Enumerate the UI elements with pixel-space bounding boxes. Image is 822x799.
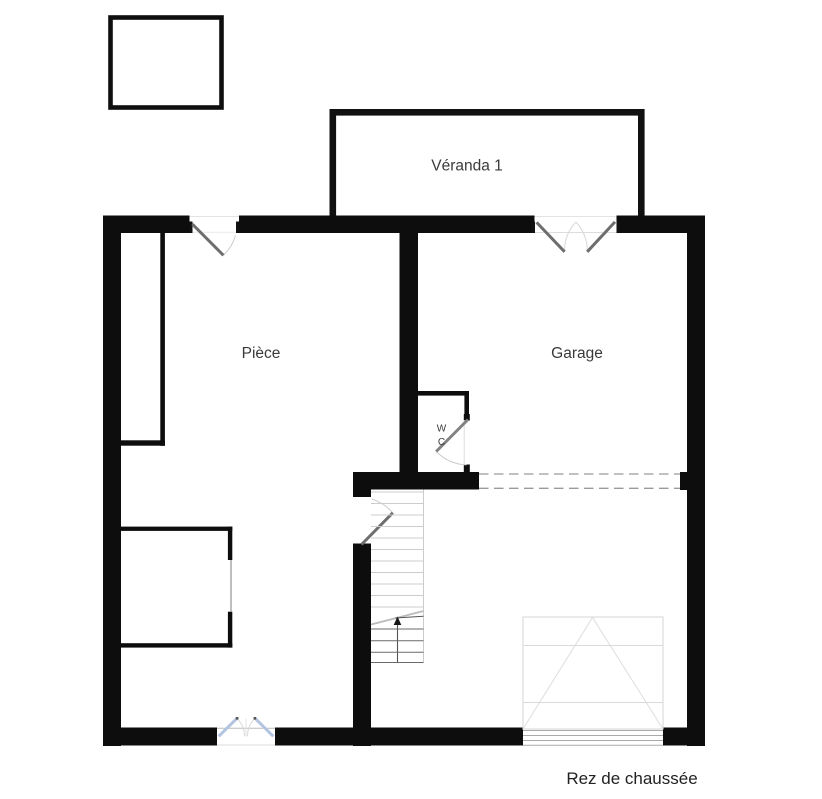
svg-text:W: W (437, 424, 447, 435)
svg-text:Rez de chaussée: Rez de chaussée (566, 769, 697, 788)
svg-text:Pièce: Pièce (242, 345, 281, 362)
svg-text:Garage: Garage (551, 345, 603, 362)
svg-text:C: C (438, 437, 445, 448)
svg-text:Véranda 1: Véranda 1 (431, 158, 503, 175)
